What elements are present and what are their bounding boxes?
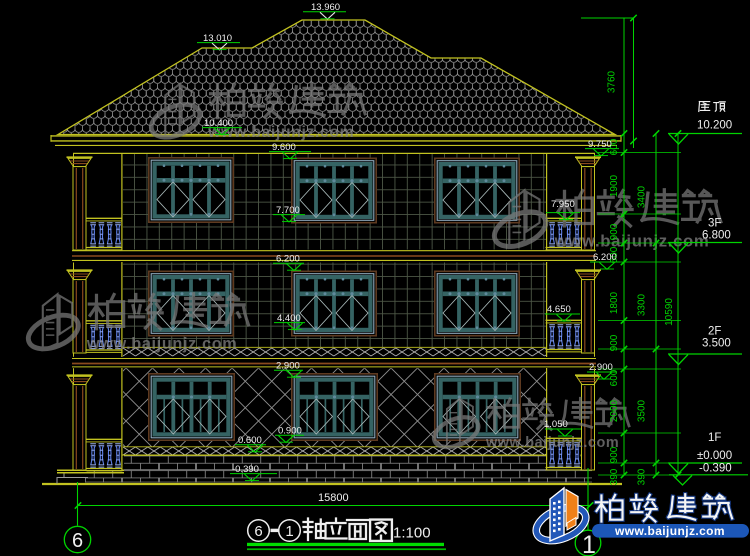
svg-text:2.900: 2.900 bbox=[589, 362, 613, 373]
svg-text:1900: 1900 bbox=[609, 174, 620, 197]
svg-text:7.950: 7.950 bbox=[551, 199, 575, 210]
svg-text:1F: 1F bbox=[708, 432, 721, 444]
svg-text:900: 900 bbox=[609, 223, 620, 240]
svg-text:6.200: 6.200 bbox=[593, 252, 617, 263]
svg-text:6: 6 bbox=[254, 523, 262, 540]
svg-text:900: 900 bbox=[609, 334, 620, 351]
svg-text:3.500: 3.500 bbox=[702, 338, 731, 350]
svg-text:900: 900 bbox=[609, 446, 620, 463]
svg-text:3760: 3760 bbox=[607, 70, 618, 93]
svg-text:390: 390 bbox=[609, 468, 620, 485]
svg-text:15800: 15800 bbox=[318, 492, 349, 504]
svg-text:www.baijunjz.com: www.baijunjz.com bbox=[614, 524, 725, 538]
svg-text:390: 390 bbox=[637, 468, 648, 485]
svg-text:3500: 3500 bbox=[637, 399, 648, 422]
svg-text:1:100: 1:100 bbox=[393, 525, 431, 542]
svg-text:2000: 2000 bbox=[609, 399, 620, 422]
svg-text:10590: 10590 bbox=[664, 298, 675, 326]
svg-text:±0.000: ±0.000 bbox=[697, 450, 732, 462]
svg-text:4.650: 4.650 bbox=[547, 304, 571, 315]
svg-text:1: 1 bbox=[285, 523, 293, 540]
svg-text:3300: 3300 bbox=[637, 293, 648, 316]
svg-text:6.800: 6.800 bbox=[702, 230, 731, 242]
svg-text:1.050: 1.050 bbox=[544, 419, 568, 430]
svg-text:-0.390: -0.390 bbox=[699, 463, 732, 475]
svg-text:2F: 2F bbox=[708, 326, 721, 338]
svg-text:10.200: 10.200 bbox=[697, 120, 732, 132]
svg-text:3400: 3400 bbox=[637, 185, 648, 208]
svg-text:3F: 3F bbox=[708, 218, 721, 230]
svg-text:1800: 1800 bbox=[609, 291, 620, 314]
svg-text:6: 6 bbox=[72, 530, 83, 552]
